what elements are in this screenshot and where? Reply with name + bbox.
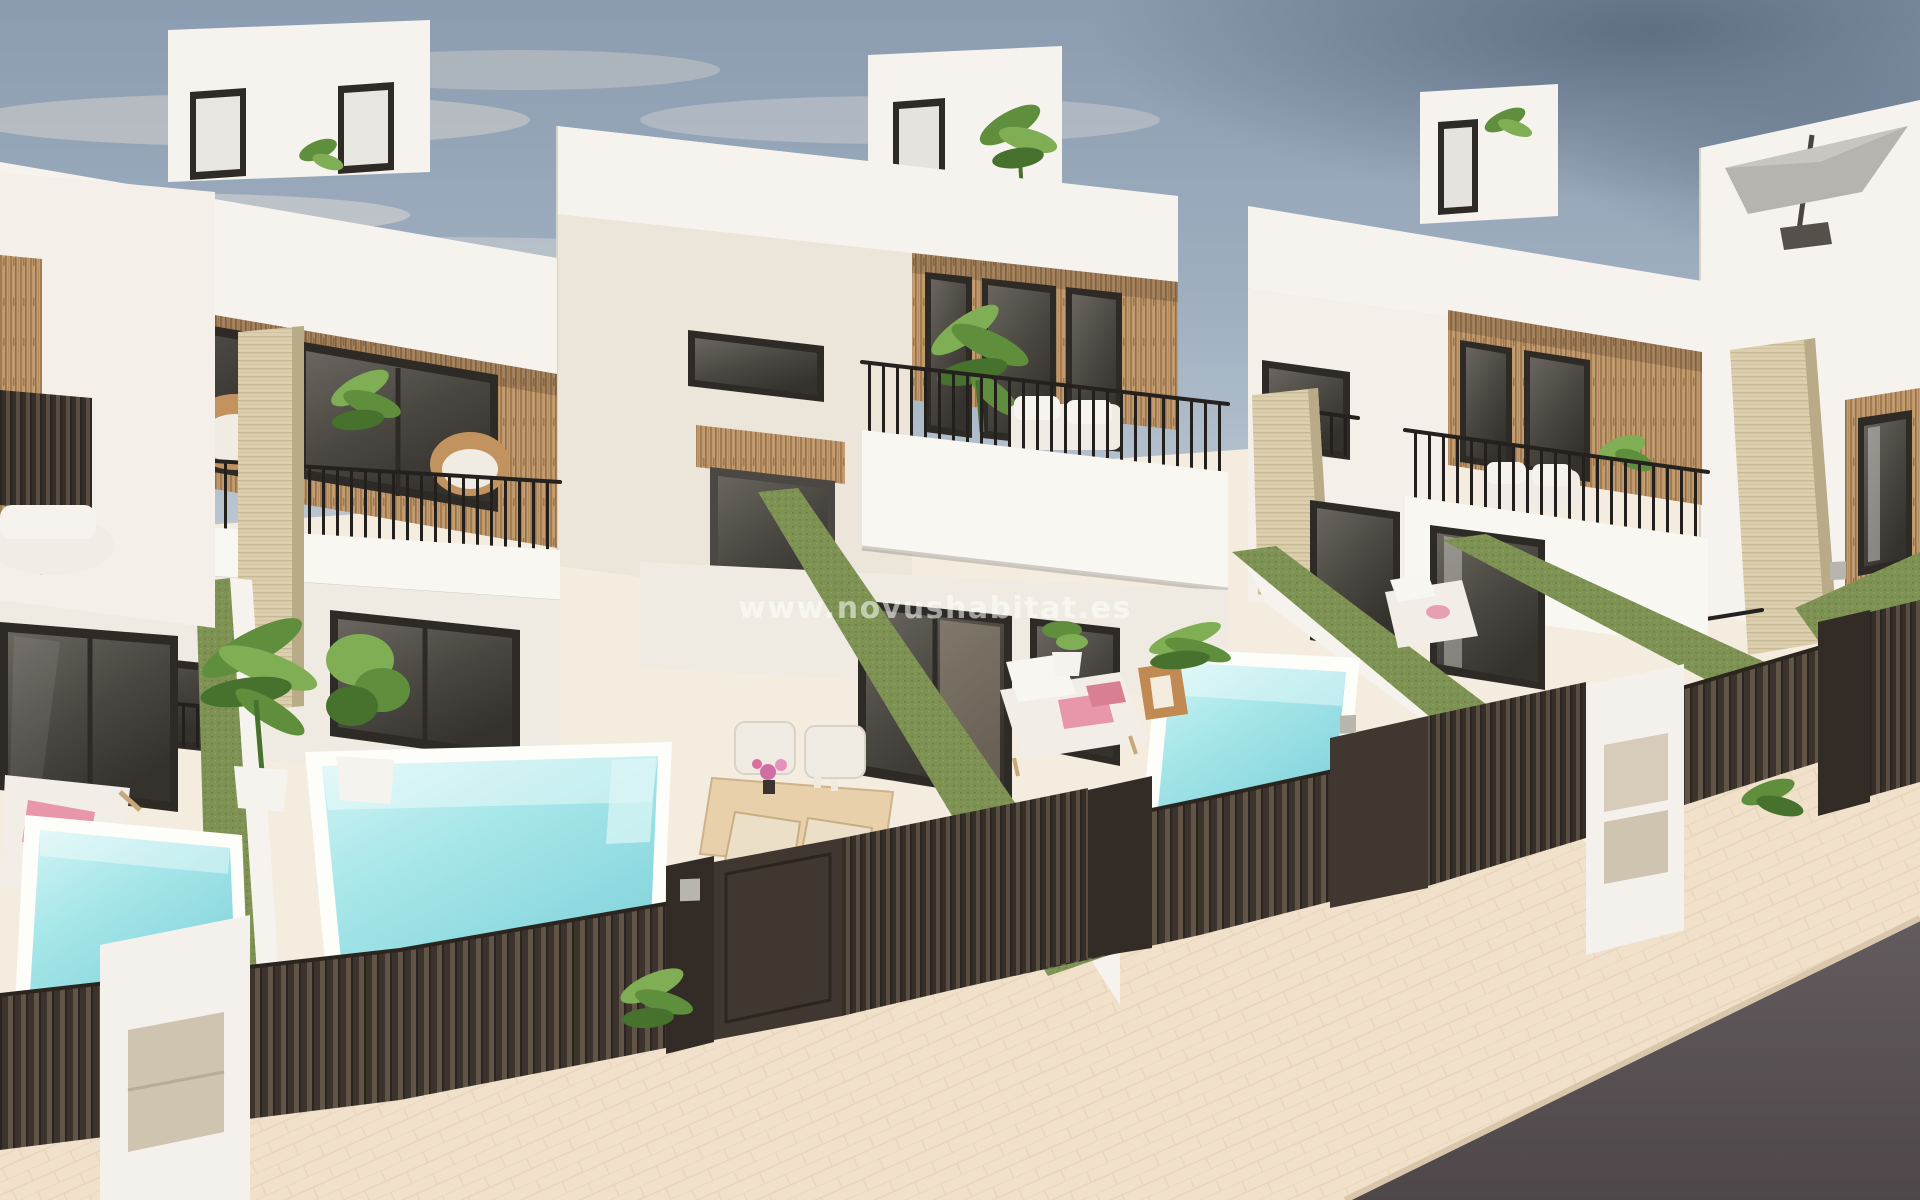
villa-render-canvas: www.novushabitat.es xyxy=(0,0,1920,1200)
candle xyxy=(831,779,838,791)
keypad xyxy=(1340,715,1356,734)
candle xyxy=(814,776,821,788)
gate-pillar xyxy=(1088,776,1152,958)
keypad-pillar xyxy=(1818,610,1870,816)
sliding-slat-gate xyxy=(1870,600,1920,796)
pink-towel xyxy=(1426,605,1450,619)
curtain xyxy=(1868,426,1880,562)
rooftop-door xyxy=(196,96,240,172)
keypad xyxy=(680,879,700,902)
plant-pot xyxy=(234,766,288,812)
pedestrian-door xyxy=(1330,716,1428,908)
dining-chair xyxy=(805,726,865,778)
travertine-pillar-shade xyxy=(292,326,304,707)
letterbox-panel xyxy=(1604,733,1668,812)
letterbox-pillar xyxy=(1586,664,1684,955)
rooftop-door xyxy=(1444,127,1472,208)
keypad xyxy=(1830,561,1846,580)
utility-panel xyxy=(1604,810,1668,884)
render-photo: www.novushabitat.es xyxy=(0,0,1920,1200)
house-0 xyxy=(0,172,250,1028)
plant-pot xyxy=(336,756,394,804)
watermark-text: www.novushabitat.es xyxy=(738,591,1132,626)
privacy-screen xyxy=(0,390,92,512)
rooftop-door xyxy=(344,90,388,166)
pool-steps xyxy=(606,758,656,844)
